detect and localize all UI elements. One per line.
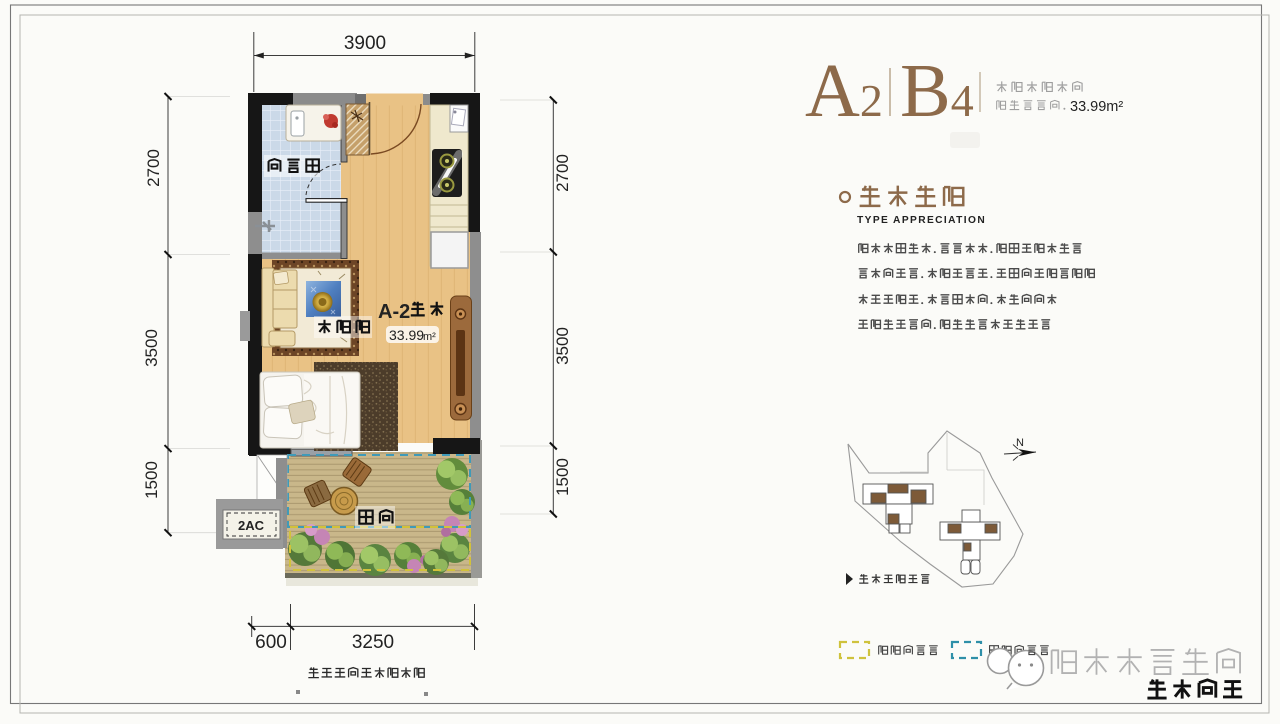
- svg-text:1500: 1500: [553, 458, 572, 496]
- svg-text:2AC: 2AC: [238, 518, 265, 533]
- svg-text:600: 600: [255, 632, 287, 653]
- svg-text:2700: 2700: [553, 154, 572, 192]
- svg-text:3250: 3250: [352, 632, 394, 653]
- svg-text:N: N: [1016, 437, 1024, 449]
- svg-text:3500: 3500: [142, 329, 161, 367]
- svg-text:1500: 1500: [142, 461, 161, 499]
- svg-text:TYPE APPRECIATION: TYPE APPRECIATION: [857, 215, 986, 226]
- svg-text:3900: 3900: [344, 33, 386, 54]
- svg-text:2700: 2700: [144, 149, 163, 187]
- svg-text:A-2: A-2: [378, 301, 410, 323]
- svg-text:33.99: 33.99: [389, 327, 424, 343]
- svg-text:33.99m²: 33.99m²: [1070, 99, 1123, 115]
- svg-text:3500: 3500: [553, 327, 572, 365]
- svg-text:m²: m²: [423, 331, 436, 343]
